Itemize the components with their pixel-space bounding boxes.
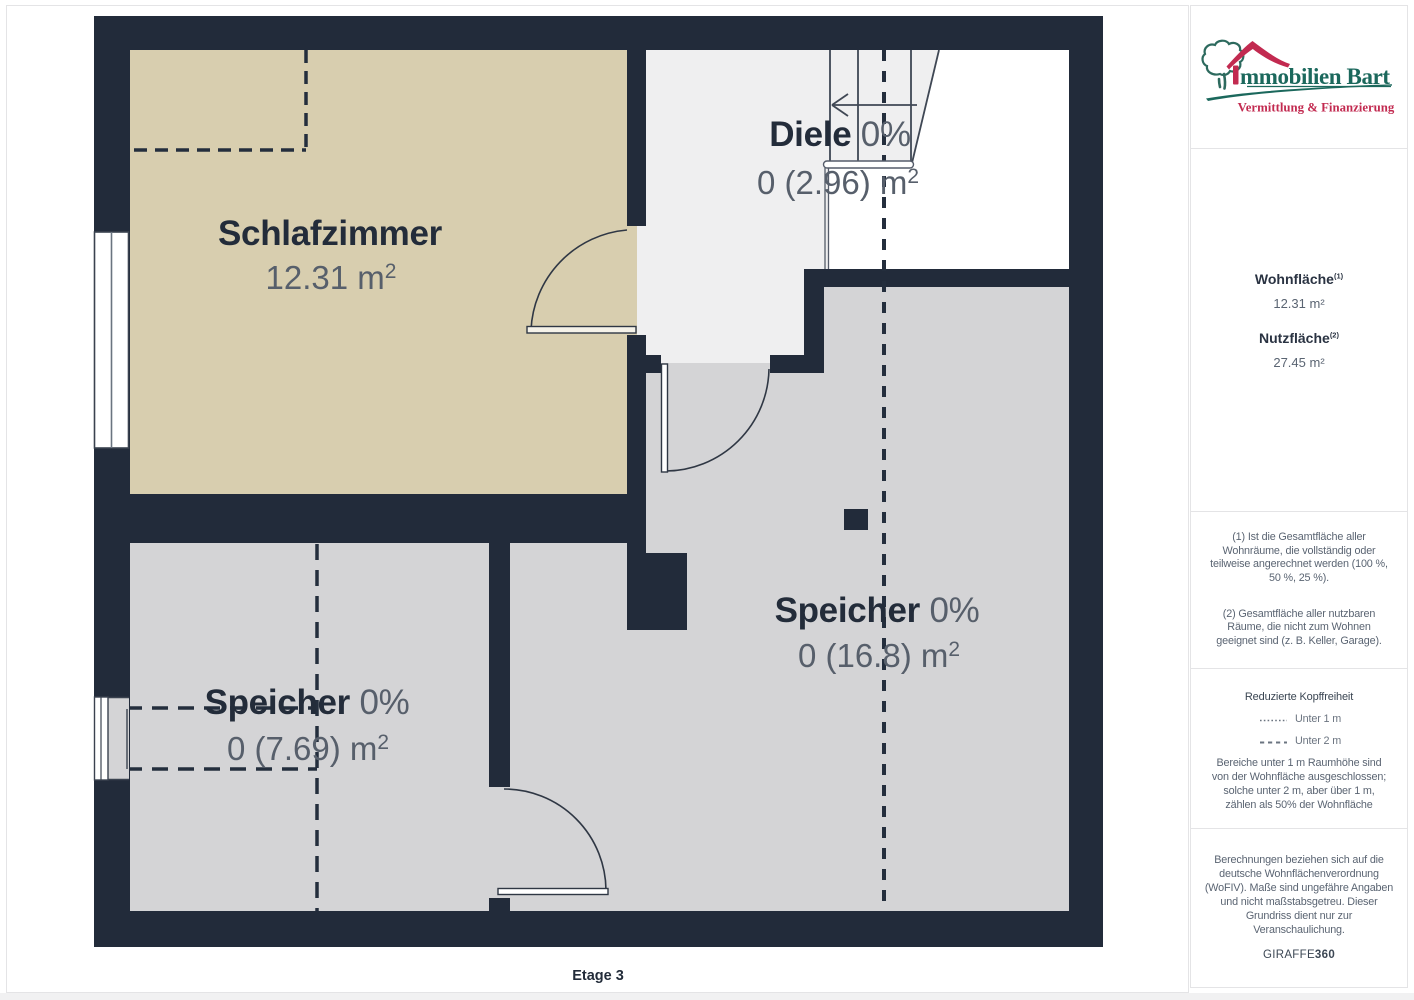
svg-text:12.31 m2: 12.31 m2 <box>266 259 397 296</box>
svg-text:Speicher 0%: Speicher 0% <box>205 683 410 722</box>
svg-text:Speicher 0%: Speicher 0% <box>775 591 980 630</box>
svg-text:0 (7.69) m2: 0 (7.69) m2 <box>227 730 389 767</box>
svg-text:Etage 3: Etage 3 <box>572 968 624 984</box>
svg-text:Vermittlung & Finanzierung: Vermittlung & Finanzierung <box>1238 101 1395 115</box>
svg-text:Schlafzimmer: Schlafzimmer <box>218 214 443 253</box>
svg-text:Diele 0%: Diele 0% <box>769 115 911 154</box>
svg-text:0 (2.96) m2: 0 (2.96) m2 <box>757 164 919 201</box>
svg-text:0 (16.8) m2: 0 (16.8) m2 <box>798 637 960 674</box>
